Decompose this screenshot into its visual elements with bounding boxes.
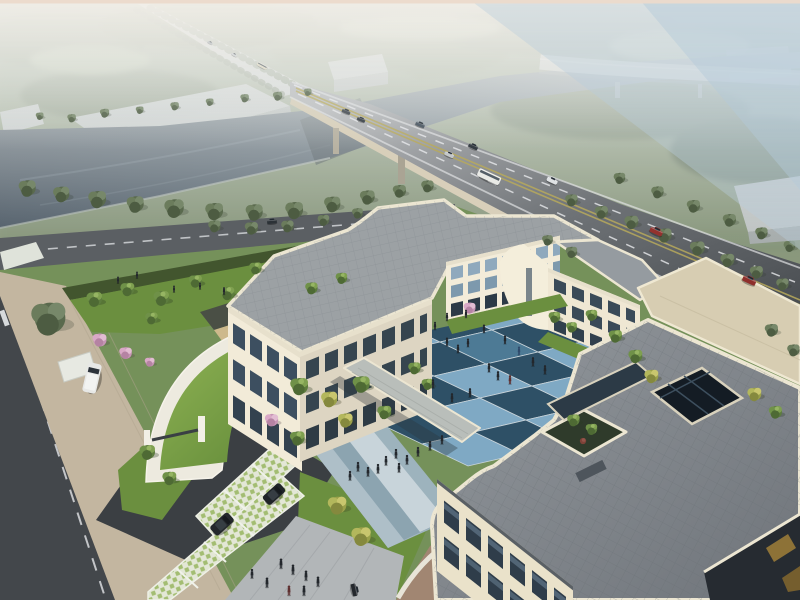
- gate-pillar: [198, 416, 205, 442]
- bridge-pier: [333, 128, 339, 154]
- rendering-canvas: [0, 0, 800, 600]
- tree-r: [580, 438, 586, 444]
- architectural-rendering: [0, 0, 800, 600]
